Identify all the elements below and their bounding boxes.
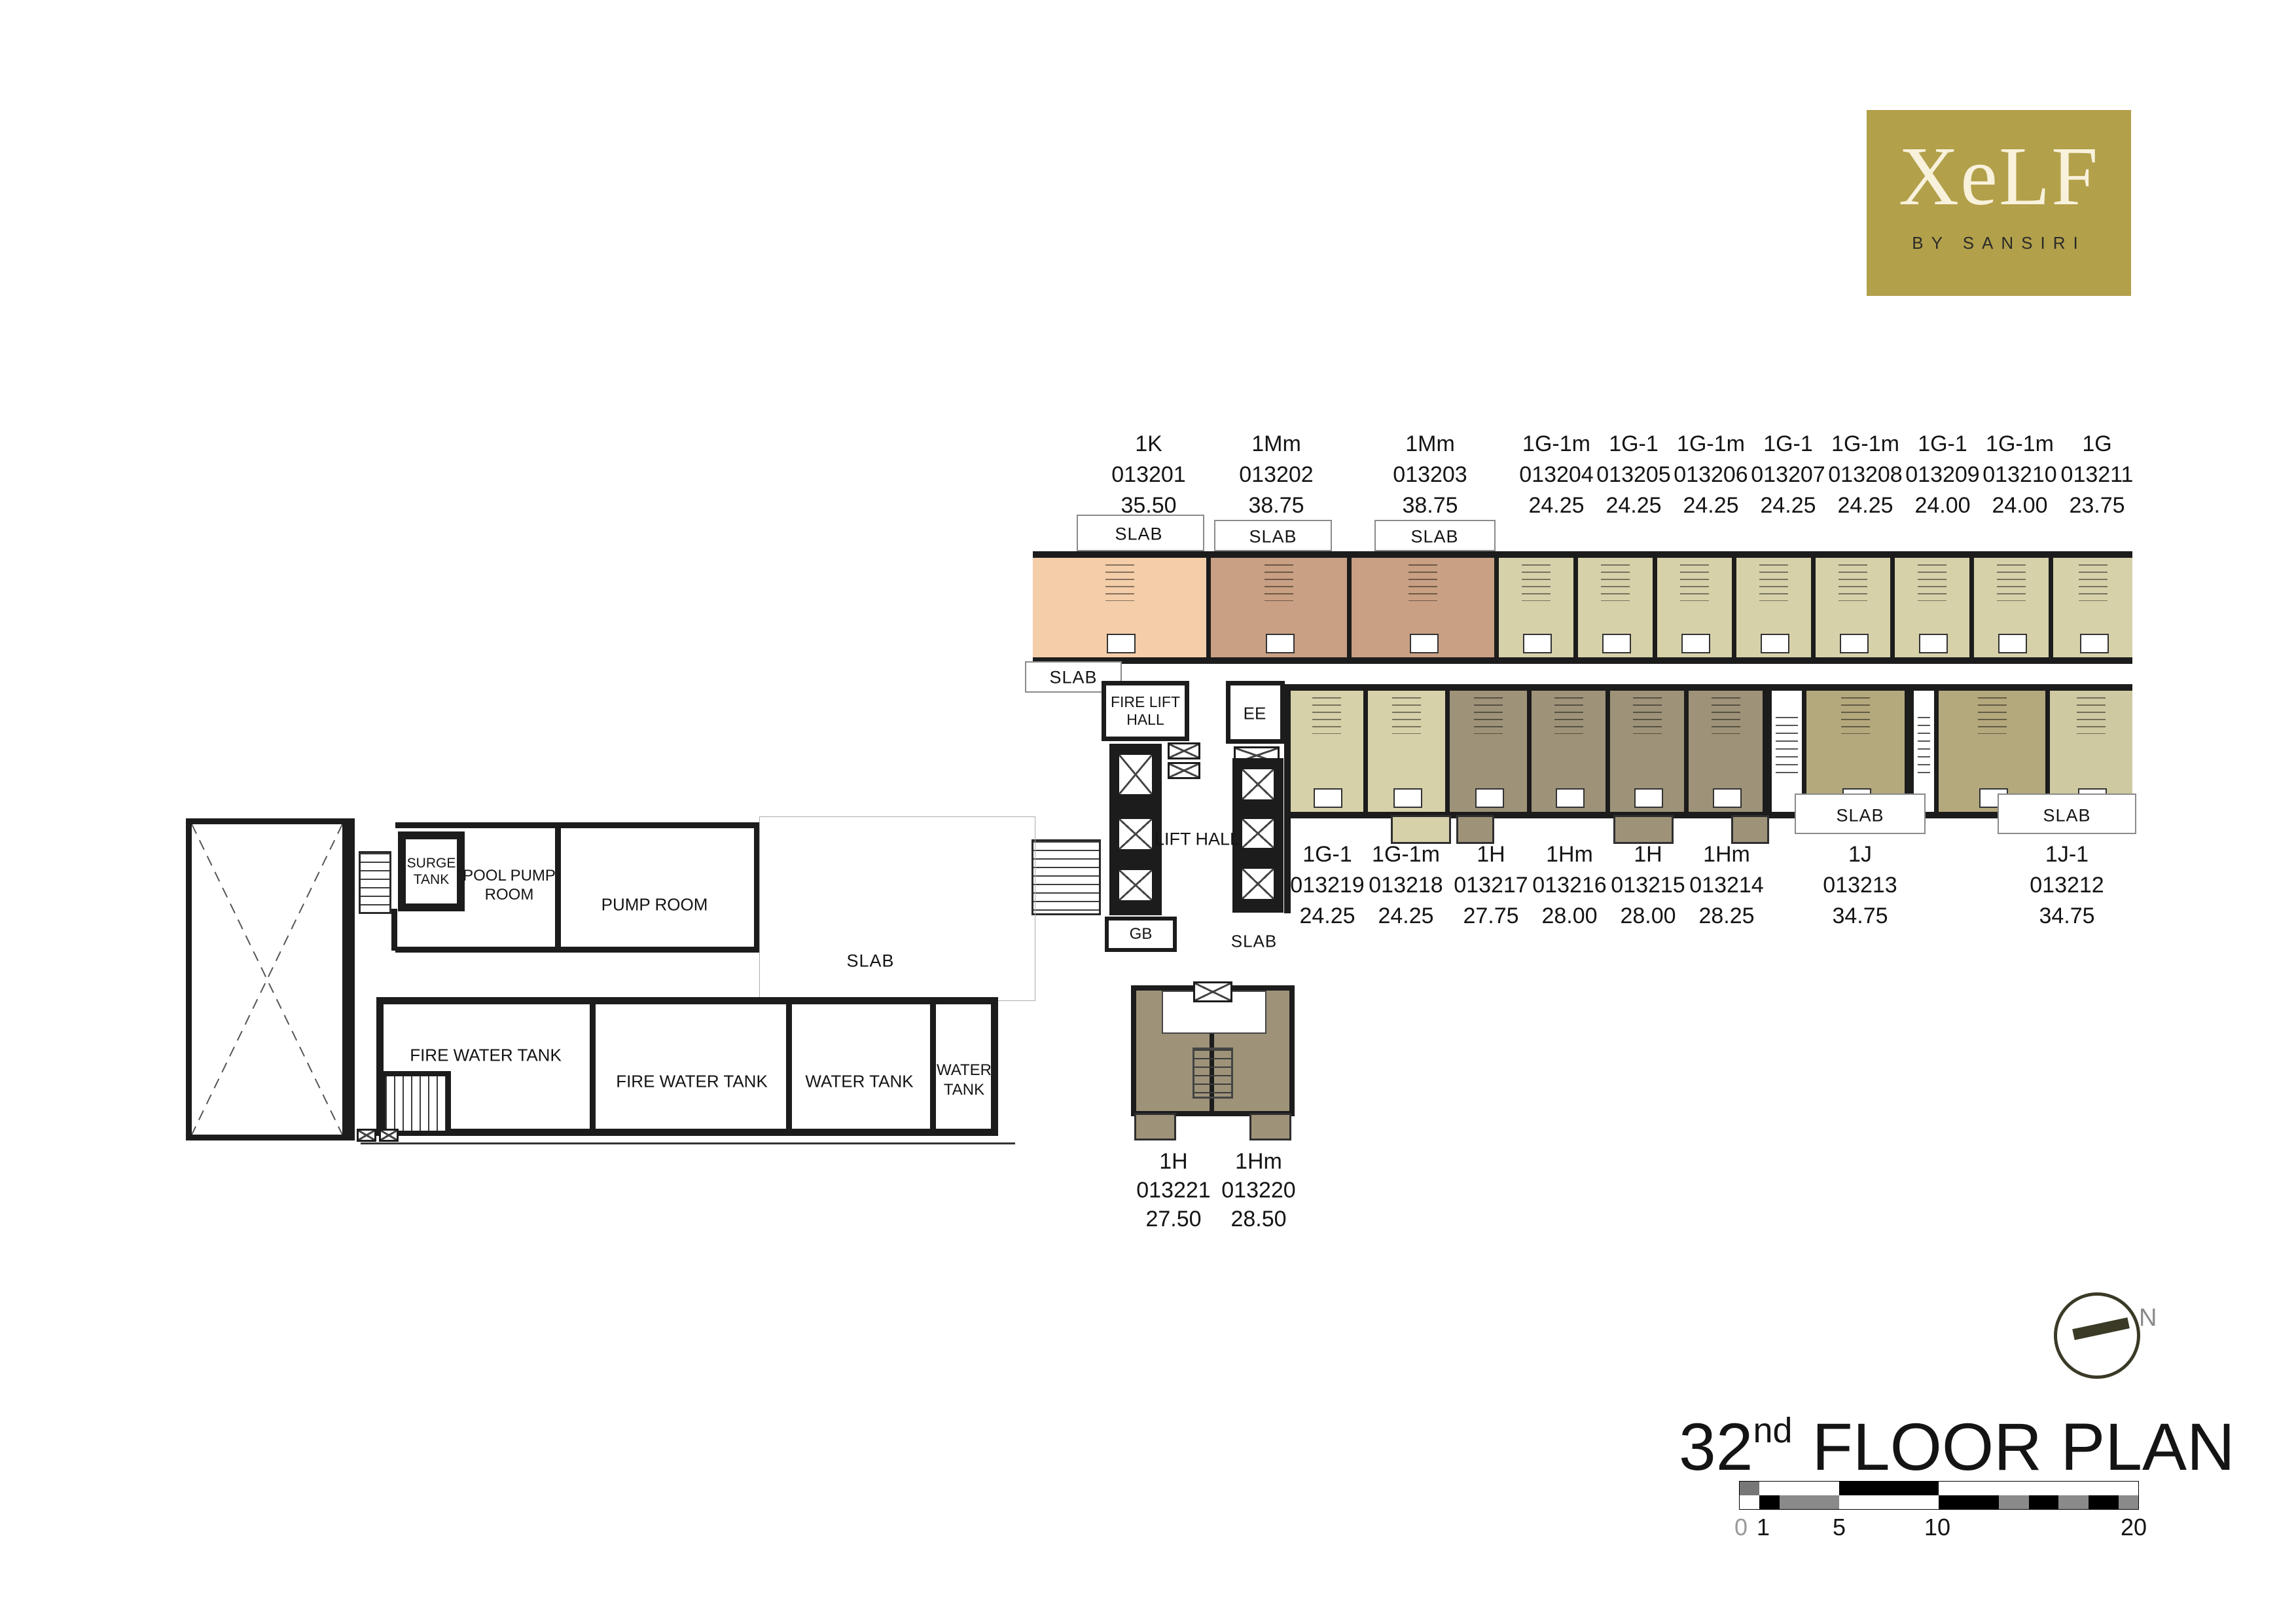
unit-label: 1Mm 013203 38.75 xyxy=(1374,429,1486,521)
slab-label: SLAB xyxy=(1115,524,1162,545)
unit-1mm xyxy=(1211,558,1352,657)
unit-type: 1Hm xyxy=(1203,1147,1314,1176)
title-text: FLOOR PLAN xyxy=(1812,1410,2235,1484)
title-suffix: nd xyxy=(1753,1411,1792,1450)
title-number: 32 xyxy=(1679,1410,1753,1484)
brand-logo: XeLF BY SANSIRI xyxy=(1867,110,2131,296)
unit-1h xyxy=(1610,691,1689,812)
scale-segment xyxy=(1759,1482,1839,1495)
scale-bar xyxy=(1739,1481,2139,1510)
compass-circle xyxy=(2054,1292,2140,1379)
core-wall xyxy=(1284,684,1291,913)
scale-tick: 10 xyxy=(1924,1514,1950,1541)
lift-hall-label: LIFT HALL xyxy=(1155,830,1240,850)
scale-segment xyxy=(2119,1495,2138,1509)
unit-1hm xyxy=(1689,691,1767,812)
pool-pump-room-label: POOL PUMP ROOM xyxy=(463,866,556,904)
tank-wall xyxy=(786,1002,792,1131)
scale-tick: 5 xyxy=(1833,1514,1846,1541)
scale-segment xyxy=(1780,1495,1839,1509)
page-title: 32ndFLOOR PLAN xyxy=(1679,1409,2235,1486)
shaft-box xyxy=(379,1129,399,1142)
unit-label: 1J-1 013212 34.75 xyxy=(2011,839,2123,932)
unit-label: 1Hm 013214 28.25 xyxy=(1671,839,1782,932)
water-tank-line2: TANK xyxy=(937,1080,992,1100)
stub-stair xyxy=(1193,1048,1233,1099)
balcony xyxy=(1249,1113,1291,1140)
wing-wall xyxy=(395,947,760,953)
pool-pump-line1: POOL PUMP xyxy=(463,866,556,885)
north-label: N xyxy=(2139,1304,2157,1332)
lift-car xyxy=(1240,867,1276,901)
top-wing xyxy=(1033,551,2132,664)
unit-1g1m xyxy=(1499,558,1578,657)
lift-car xyxy=(1240,767,1276,801)
unit-label: 1Mm 013202 38.75 xyxy=(1221,429,1332,521)
surge-line1: SURGE xyxy=(407,855,456,871)
unit-id: 013211 xyxy=(2041,460,2153,490)
scale-segment xyxy=(1939,1482,2138,1495)
unit-id: 013212 xyxy=(2011,870,2123,901)
unit-label: 1G 013211 23.75 xyxy=(2041,429,2153,521)
scale-segment xyxy=(1939,1495,1999,1509)
scale-segment xyxy=(1839,1482,1939,1495)
unit-1g1 xyxy=(1895,558,1974,657)
surge-line2: TANK xyxy=(407,871,456,888)
scale-segment xyxy=(2089,1495,2119,1509)
unit-label: 1K 013201 35.50 xyxy=(1093,429,1204,521)
unit-1k xyxy=(1033,558,1211,657)
fire-water-tank-label: FIRE WATER TANK xyxy=(616,1072,768,1092)
gb-label: GB xyxy=(1130,925,1153,943)
slab-label: SLAB xyxy=(846,951,894,972)
tank-stair xyxy=(380,1071,451,1136)
lift-car xyxy=(1117,753,1154,796)
slab-label: SLAB xyxy=(1249,527,1297,547)
fire-lift-hall-line1: FIRE LIFT xyxy=(1111,693,1180,711)
floor-plan-canvas: XeLF BY SANSIRI 1K 013201 35.50 1Mm 0132… xyxy=(0,0,2296,1623)
unit-area: 23.75 xyxy=(2041,490,2153,521)
wing-wall xyxy=(395,822,759,828)
unit-id: 013220 xyxy=(1203,1176,1314,1205)
fire-lift-hall-line2: HALL xyxy=(1111,711,1180,729)
scale-segment xyxy=(2029,1495,2058,1509)
tank-wall xyxy=(930,1002,936,1131)
unit-label: 1J 013213 34.75 xyxy=(1804,839,1916,932)
fire-water-tank-label: FIRE WATER TANK xyxy=(410,1046,562,1066)
unit-1g1m xyxy=(1974,558,2053,657)
unit-type: 1Mm xyxy=(1221,429,1332,460)
unit-1g1m xyxy=(1368,691,1450,812)
unit-type: 1Mm xyxy=(1374,429,1486,460)
scale-tick: 20 xyxy=(2121,1514,2147,1541)
unit-1h xyxy=(1450,691,1532,812)
tanks-block xyxy=(376,997,998,1136)
void-area xyxy=(186,818,348,1140)
unit-id: 013213 xyxy=(1804,870,1916,901)
unit-1g xyxy=(2053,558,2132,657)
scale-segment xyxy=(2058,1495,2089,1509)
wing-wall xyxy=(555,826,561,951)
brand-logo-subtext: BY SANSIRI xyxy=(1867,233,2131,253)
unit-1g1 xyxy=(1578,558,1657,657)
unit-area: 34.75 xyxy=(1804,901,1916,932)
unit-label: 1Hm 013220 28.50 xyxy=(1203,1147,1314,1233)
unit-area: 28.25 xyxy=(1671,901,1782,932)
unit-id: 013201 xyxy=(1093,460,1204,490)
water-tank-line1: WATER xyxy=(937,1061,992,1080)
brand-logo-text: XeLF xyxy=(1867,127,2131,225)
unit-1g1m xyxy=(1816,558,1895,657)
fire-lift-hall-label: FIRE LIFT HALL xyxy=(1111,693,1180,729)
water-tank-label: WATER TANK xyxy=(937,1061,992,1100)
wing-wall xyxy=(391,909,397,951)
ground-line xyxy=(361,1142,1015,1144)
unit-type: 1G xyxy=(2041,429,2153,460)
unit-1g1 xyxy=(1736,558,1816,657)
corridor-wall xyxy=(348,818,355,1140)
unit-1g1m xyxy=(1657,558,1736,657)
unit-type: 1K xyxy=(1093,429,1204,460)
unit-1mm xyxy=(1352,558,1499,657)
slab-area xyxy=(759,816,1035,1001)
slab-label: SLAB xyxy=(1231,932,1278,952)
pool-pump-line2: ROOM xyxy=(463,885,556,904)
unit-id: 013214 xyxy=(1671,870,1782,901)
pump-room-label: PUMP ROOM xyxy=(601,895,708,915)
scale-segment xyxy=(1839,1495,1939,1509)
shaft-box xyxy=(1168,762,1200,779)
unit-id: 013203 xyxy=(1374,460,1486,490)
lift-car xyxy=(1117,817,1154,851)
slab-label: SLAB xyxy=(2043,806,2090,826)
shaft-box xyxy=(357,1129,376,1142)
unit-1g1 xyxy=(1289,691,1368,812)
lift-car xyxy=(1240,817,1276,850)
lift-car xyxy=(1117,868,1154,902)
balcony xyxy=(1134,1113,1176,1140)
scale-segment xyxy=(1759,1495,1780,1509)
tank-wall xyxy=(590,1002,596,1131)
west-stair xyxy=(359,851,391,914)
water-tank-label: WATER TANK xyxy=(805,1072,913,1092)
ee-label: EE xyxy=(1244,704,1266,724)
unit-type: 1J xyxy=(1804,839,1916,870)
scale-tick: 1 xyxy=(1757,1514,1770,1541)
unit-type: 1J-1 xyxy=(2011,839,2123,870)
scale-segment xyxy=(1740,1495,1759,1509)
unit-1hm xyxy=(1532,691,1610,812)
shaft-box xyxy=(1193,981,1232,1002)
slab-label: SLAB xyxy=(1049,668,1097,688)
unit-type: 1Hm xyxy=(1671,839,1782,870)
unit-area: 28.50 xyxy=(1203,1205,1314,1233)
unit-id: 013202 xyxy=(1221,460,1332,490)
shaft-box xyxy=(1168,742,1200,759)
scale-segment xyxy=(1999,1495,2029,1509)
scale-tick: 0 xyxy=(1734,1514,1748,1541)
surge-tank-label: SURGE TANK xyxy=(407,855,456,888)
void-x-marks xyxy=(192,824,342,1135)
scale-segment xyxy=(1740,1482,1759,1495)
unit-area: 38.75 xyxy=(1374,490,1486,521)
slab-label: SLAB xyxy=(1410,527,1458,547)
slab-label: SLAB xyxy=(1836,806,1884,826)
unit-area: 34.75 xyxy=(2011,901,2123,932)
core-stair xyxy=(1031,839,1101,915)
unit-area: 38.75 xyxy=(1221,490,1332,521)
